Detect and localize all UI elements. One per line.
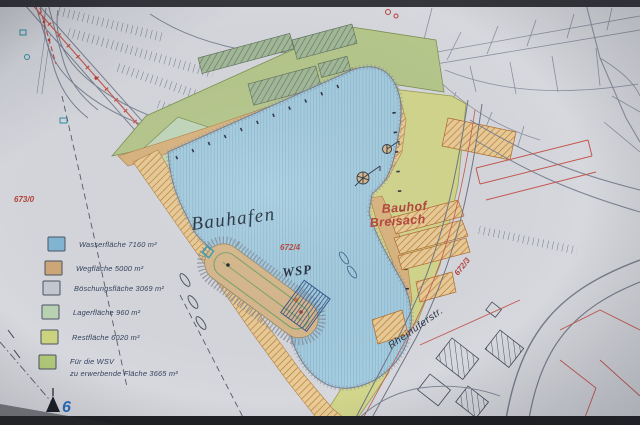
site-plan-svg: 673/0 672/4 672/3 Bauhafen WSP Bauhof Br…: [0, 0, 640, 425]
map-photo: 673/0 672/4 672/3 Bauhafen WSP Bauhof Br…: [0, 0, 640, 425]
photo-vignette: [0, 0, 640, 425]
